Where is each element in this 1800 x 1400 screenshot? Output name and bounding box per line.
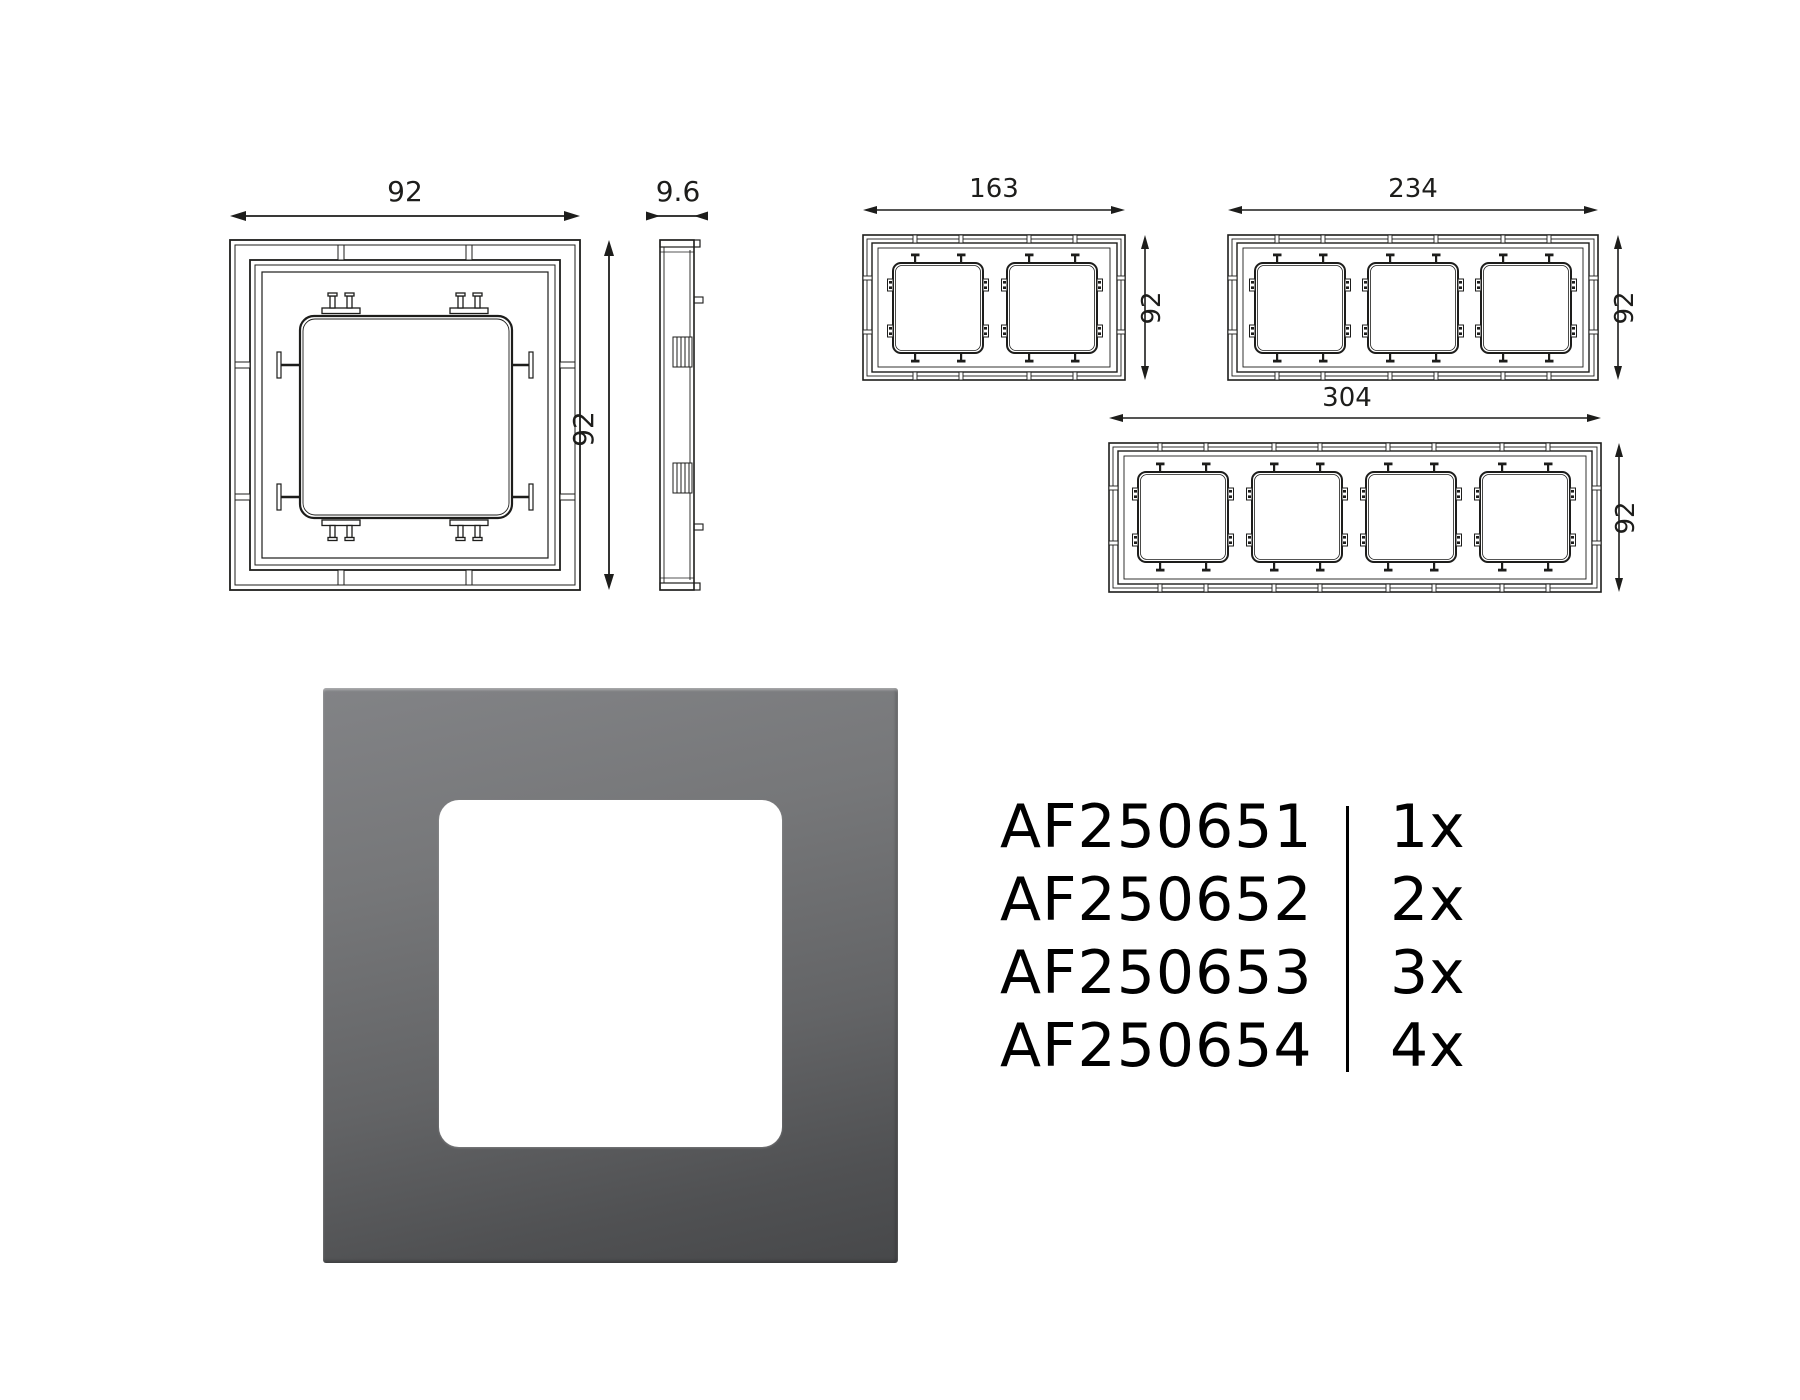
module-insert (1133, 463, 1234, 572)
part-quantity: 4x (1390, 1011, 1466, 1081)
part-code: AF250653 (1000, 938, 1390, 1008)
part-code: AF250654 (1000, 1011, 1390, 1081)
three-gang-drawing: 234 92 (1200, 170, 1665, 400)
module-insert (1361, 463, 1462, 572)
part-code: AF250651 (1000, 792, 1390, 862)
part-row: AF250652 2x (1000, 863, 1560, 936)
profile-body (660, 240, 703, 590)
part-code: AF250652 (1000, 865, 1390, 935)
module-insert (1475, 463, 1576, 572)
part-row: AF250653 3x (1000, 936, 1560, 1009)
width-label: 163 (969, 174, 1019, 204)
dimension-height: 92 (1137, 235, 1167, 380)
module-insert (1247, 463, 1348, 572)
dimension-width: 163 (863, 174, 1125, 214)
module-insert (1476, 254, 1577, 363)
height-label: 92 (1611, 501, 1641, 534)
top-clips (322, 293, 488, 314)
dimension-width: 234 (1228, 174, 1598, 214)
product-frame-window (439, 800, 782, 1147)
part-quantity: 2x (1390, 865, 1466, 935)
height-label: 92 (567, 411, 600, 447)
part-quantity: 1x (1390, 792, 1466, 862)
width-label: 234 (1388, 174, 1438, 204)
part-row: AF250651 1x (1000, 790, 1560, 863)
height-label: 92 (1137, 291, 1167, 324)
dimension-width: 92 (230, 175, 580, 221)
part-quantity: 3x (1390, 938, 1466, 1008)
bottom-clips (322, 520, 488, 541)
module-insert (1002, 254, 1103, 363)
part-row: AF250654 4x (1000, 1009, 1560, 1082)
module-insert (888, 254, 989, 363)
dimension-width: 304 (1109, 385, 1601, 422)
mounting-plate (300, 316, 512, 518)
width-label: 92 (387, 175, 423, 208)
side-profile-drawing: 9.6 (640, 145, 760, 615)
depth-label: 9.6 (656, 175, 701, 208)
part-number-list: AF250651 1x AF250652 2x AF250653 3x AF25… (1000, 790, 1560, 1082)
two-gang-drawing: 163 92 (840, 170, 1180, 400)
height-label: 92 (1610, 291, 1640, 324)
width-label: 304 (1322, 385, 1372, 413)
dimension-height: 92 (1611, 443, 1641, 592)
dimension-height: 92 (1610, 235, 1640, 380)
dimension-depth: 9.6 (646, 175, 708, 221)
four-gang-drawing: 304 92 (1080, 385, 1680, 625)
single-frame-front-drawing: 92 92 (170, 145, 630, 615)
side-pins (277, 352, 533, 510)
catalog-page: 92 92 9.6 (0, 0, 1800, 1400)
product-photo-frame (323, 688, 898, 1263)
module-insert (1250, 254, 1351, 363)
profile-hatching (673, 337, 692, 493)
parts-divider (1346, 806, 1349, 1072)
dimension-height: 92 (567, 240, 614, 590)
frame-outline (230, 240, 580, 590)
frame-seams (235, 245, 575, 585)
module-insert (1363, 254, 1464, 363)
